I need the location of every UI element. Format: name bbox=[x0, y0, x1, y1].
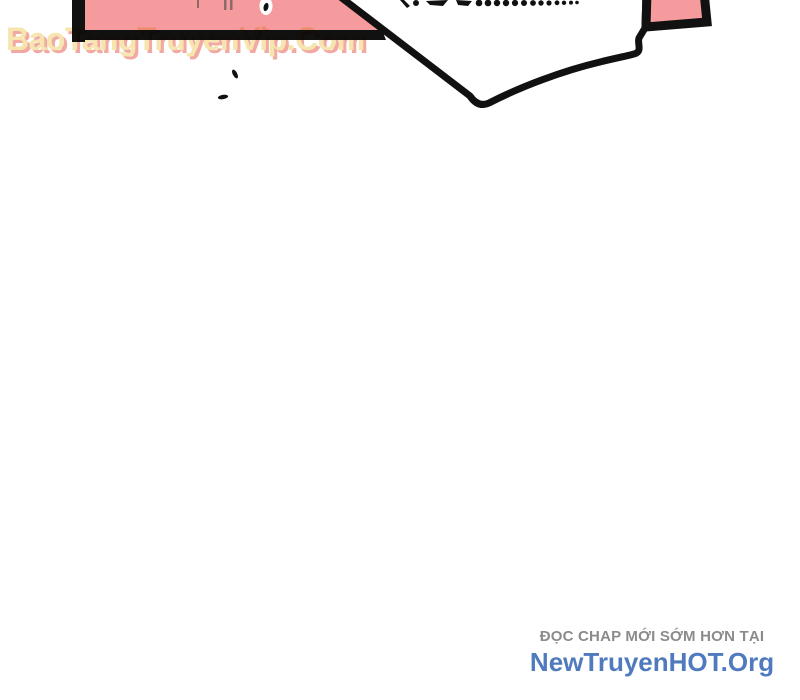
white-shape-outline bbox=[334, 0, 646, 104]
footer-promo-text: ĐỌC CHAP MỚI SỚM HƠN TẠI bbox=[528, 627, 776, 646]
footer-site-name: NewTruyenHOT.Org bbox=[528, 646, 776, 678]
webtoon-page: BaoTangTruyenVip.Com ĐỌC CHAP MỚI SỚM HƠ… bbox=[0, 0, 800, 700]
footer-promo: ĐỌC CHAP MỚI SỚM HƠN TẠI NewTruyenHOT.Or… bbox=[528, 627, 776, 678]
ink-specks bbox=[217, 69, 239, 100]
site-watermark: BaoTangTruyenVip.Com bbox=[6, 21, 365, 58]
pink-panel-right bbox=[646, 0, 707, 27]
